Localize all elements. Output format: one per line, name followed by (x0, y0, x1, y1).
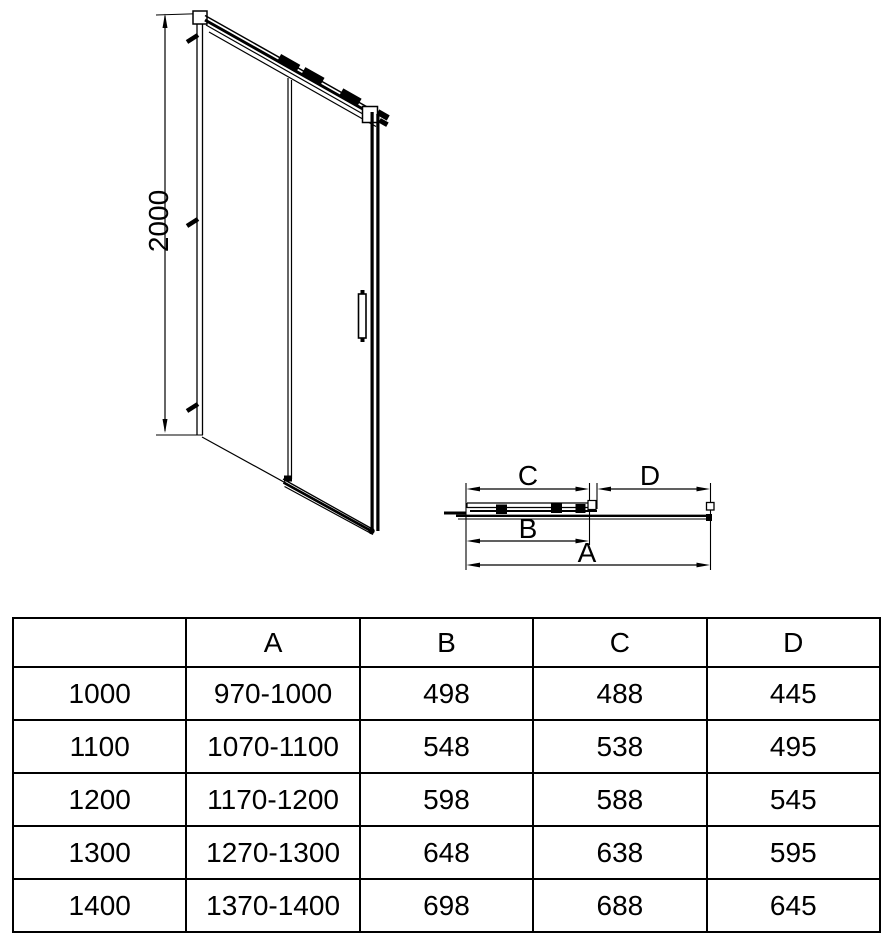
height-dimension: 2000 (143, 14, 204, 436)
table-cell-c: 638 (533, 826, 706, 879)
table-row: 1200 1170-1200 598 588 545 (13, 773, 880, 826)
door-handle (359, 290, 367, 342)
table-cell-a: 1170-1200 (186, 773, 359, 826)
glass-panels (202, 78, 371, 530)
table-cell-c: 488 (533, 667, 706, 720)
arrow-right-icon (697, 487, 711, 492)
table-cell-d: 445 (707, 667, 880, 720)
height-dimension-label: 2000 (143, 190, 174, 252)
table-header-size (13, 618, 186, 667)
dimension-b-label: B (519, 513, 538, 544)
table-row: 1400 1370-1400 698 688 645 (13, 879, 880, 932)
dimensions-table: A B C D 1000 970-1000 498 488 445 1100 1… (12, 617, 881, 933)
table-cell-a: 970-1000 (186, 667, 359, 720)
table-row: 1300 1270-1300 648 638 595 (13, 826, 880, 879)
table-header-a: A (186, 618, 359, 667)
arrow-left-icon (598, 487, 612, 492)
top-rail (205, 16, 390, 127)
table-cell-a: 1070-1100 (186, 720, 359, 773)
table-row: 1100 1070-1100 548 538 495 (13, 720, 880, 773)
arrow-up-icon (163, 14, 168, 29)
plan-view: C D B A (444, 460, 714, 570)
technical-drawing: 2000 (0, 0, 893, 600)
table-cell-b: 548 (360, 720, 533, 773)
table-cell-c: 538 (533, 720, 706, 773)
page: 2000 (0, 0, 893, 948)
table-cell-b: 598 (360, 773, 533, 826)
arrow-left-icon (467, 563, 481, 568)
arrow-left-icon (467, 539, 481, 544)
left-wall-profile (187, 11, 207, 435)
panel-section (444, 501, 714, 522)
dimension-d: D (598, 460, 711, 491)
table-cell-size: 1400 (13, 879, 186, 932)
front-view: 2000 (143, 11, 390, 535)
dimension-b: B (467, 513, 590, 544)
table-row: 1000 970-1000 498 488 445 (13, 667, 880, 720)
table-cell-d: 495 (707, 720, 880, 773)
right-post (371, 112, 380, 531)
table-header-b: B (360, 618, 533, 667)
table-cell-size: 1100 (13, 720, 186, 773)
table-cell-b: 498 (360, 667, 533, 720)
table-cell-c: 688 (533, 879, 706, 932)
table-cell-d: 595 (707, 826, 880, 879)
table-header-d: D (707, 618, 880, 667)
dimension-c: C (467, 460, 590, 491)
table-header-row: A B C D (13, 618, 880, 667)
dimension-a-label: A (578, 537, 597, 568)
dimension-a: A (467, 537, 711, 568)
table-cell-d: 545 (707, 773, 880, 826)
rail-end-cap (363, 107, 378, 123)
arrow-right-icon (576, 487, 590, 492)
table-cell-size: 1200 (13, 773, 186, 826)
table-cell-b: 648 (360, 826, 533, 879)
arrow-left-icon (467, 487, 481, 492)
table-header-c: C (533, 618, 706, 667)
table-cell-size: 1300 (13, 826, 186, 879)
table-cell-c: 588 (533, 773, 706, 826)
table-cell-a: 1270-1300 (186, 826, 359, 879)
dimension-c-label: C (518, 460, 538, 491)
glass-clamp-icon (576, 504, 586, 513)
arrow-down-icon (163, 419, 168, 433)
bottom-rail (283, 479, 375, 535)
arrow-right-icon (697, 563, 711, 568)
dimension-d-label: D (640, 460, 660, 491)
table-cell-a: 1370-1400 (186, 879, 359, 932)
table-cell-d: 645 (707, 879, 880, 932)
table-cell-b: 698 (360, 879, 533, 932)
table-cell-size: 1000 (13, 667, 186, 720)
